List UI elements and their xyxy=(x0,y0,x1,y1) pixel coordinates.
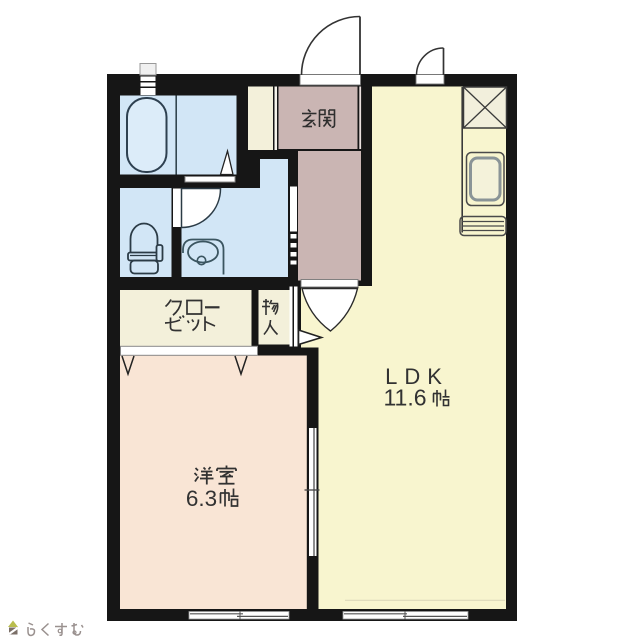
svg-text:6.3: 6.3 xyxy=(186,486,217,511)
svg-text:11.6: 11.6 xyxy=(383,385,426,411)
